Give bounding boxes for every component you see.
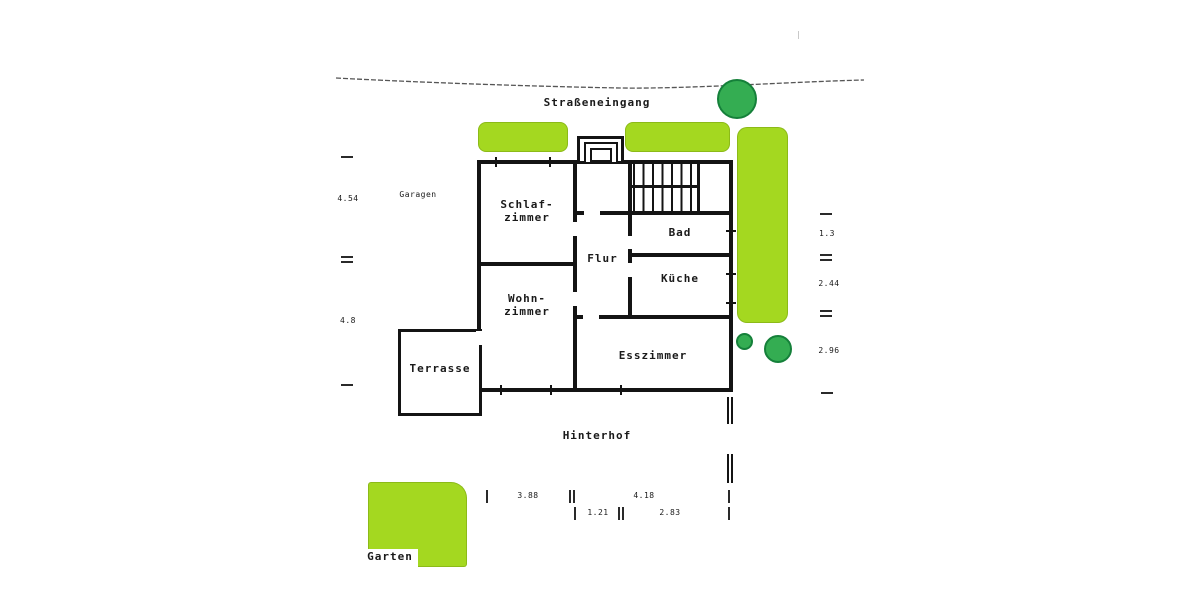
garden-label: Garten	[362, 550, 418, 563]
dim-left-top: 4.54	[330, 193, 366, 205]
dim-right-middle: 2.44	[811, 278, 847, 290]
room-wohnzimmer	[477, 262, 577, 392]
bush-large-icon	[764, 335, 792, 363]
boundary-dash-2a	[727, 454, 729, 483]
dim-left-bottom: 4.8	[330, 315, 366, 327]
dim-bottom-row2-left: 1.21	[580, 507, 616, 519]
wall-tick-top-2	[549, 157, 551, 167]
dim-tick-b2-2b	[622, 507, 624, 520]
dim-bottom-row2-right: 2.83	[652, 507, 688, 519]
schlafzimmer-line1: Schlaf-	[500, 198, 553, 211]
street-line	[330, 60, 870, 100]
wall-tick-top-1	[495, 157, 497, 167]
dim-tick-b1-1	[486, 490, 488, 503]
room-kueche	[628, 253, 733, 319]
stairs-treads-upper	[633, 164, 699, 186]
dim-tick-left-bottom	[341, 384, 353, 386]
dim-tick-left-mid-a	[341, 256, 353, 258]
dim-tick-b1-2b	[573, 490, 575, 503]
hedge-top-right	[625, 122, 730, 152]
stairs-treads-lower	[633, 188, 699, 211]
wall-tick-bottom-1	[500, 385, 502, 395]
room-label-schlafzimmer: Schlaf-zimmer	[482, 198, 572, 224]
room-flur	[573, 211, 632, 319]
hedge-right	[737, 127, 788, 323]
room-label-kueche: Küche	[630, 272, 730, 285]
street-entrance-label: Straßeneingang	[527, 96, 667, 109]
room-label-wohnzimmer: Wohn-zimmer	[482, 292, 572, 318]
room-entry-hall	[573, 160, 632, 215]
dim-tick-right-1	[820, 213, 832, 215]
bush-small-icon	[736, 333, 753, 350]
stairs-right-edge	[697, 164, 700, 211]
boundary-dash-2b	[731, 454, 733, 483]
door-gap-schlafzimmer	[572, 222, 579, 236]
room-label-flur: Flur	[575, 252, 630, 265]
dim-bottom-row1-left: 3.88	[510, 490, 546, 502]
dim-tick-b2-2a	[618, 507, 620, 520]
door-gap-flur-esszimmer	[583, 314, 599, 321]
dim-tick-right-3a	[820, 310, 832, 312]
dim-right-bottom: 2.96	[811, 345, 847, 357]
door-gap-terrasse	[476, 331, 483, 345]
entry-porch-inner	[590, 148, 612, 162]
wohnzimmer-line2: zimmer	[504, 305, 550, 318]
room-label-bad: Bad	[630, 226, 730, 239]
garages-label: Garagen	[390, 189, 446, 201]
dim-tick-b2-3	[728, 507, 730, 520]
backyard-label: Hinterhof	[537, 429, 657, 442]
stray-mark	[798, 31, 799, 39]
stairs-divider	[631, 185, 699, 188]
wall-tick-right-3	[726, 302, 736, 304]
floor-plan-canvas: Straßeneingang Garten Schlaf-zimmer Wohn…	[0, 0, 1200, 600]
dim-tick-b2-1	[574, 507, 576, 520]
room-label-terrasse: Terrasse	[401, 362, 479, 375]
wall-tick-bottom-2	[550, 385, 552, 395]
tree-icon	[717, 79, 757, 119]
dim-tick-right-4	[821, 392, 833, 394]
room-label-esszimmer: Esszimmer	[578, 349, 728, 362]
hedge-top-left	[478, 122, 568, 152]
boundary-dash-1a	[727, 397, 729, 424]
dim-tick-right-3b	[820, 315, 832, 317]
dim-tick-b1-3	[728, 490, 730, 503]
door-gap-wohnzimmer	[572, 292, 579, 306]
dim-tick-b1-2a	[569, 490, 571, 503]
dim-tick-left-mid-b	[341, 261, 353, 263]
dim-tick-left-top	[341, 156, 353, 158]
wall-tick-bottom-3	[620, 385, 622, 395]
wohnzimmer-line1: Wohn-	[508, 292, 546, 305]
schlafzimmer-line2: zimmer	[504, 211, 550, 224]
dim-tick-right-2b	[820, 259, 832, 261]
dim-right-top: 1.3	[812, 228, 842, 240]
boundary-dash-1b	[731, 397, 733, 424]
dim-tick-right-2a	[820, 254, 832, 256]
door-gap-hall-flur	[584, 210, 600, 217]
dim-bottom-row1-right: 4.18	[626, 490, 662, 502]
